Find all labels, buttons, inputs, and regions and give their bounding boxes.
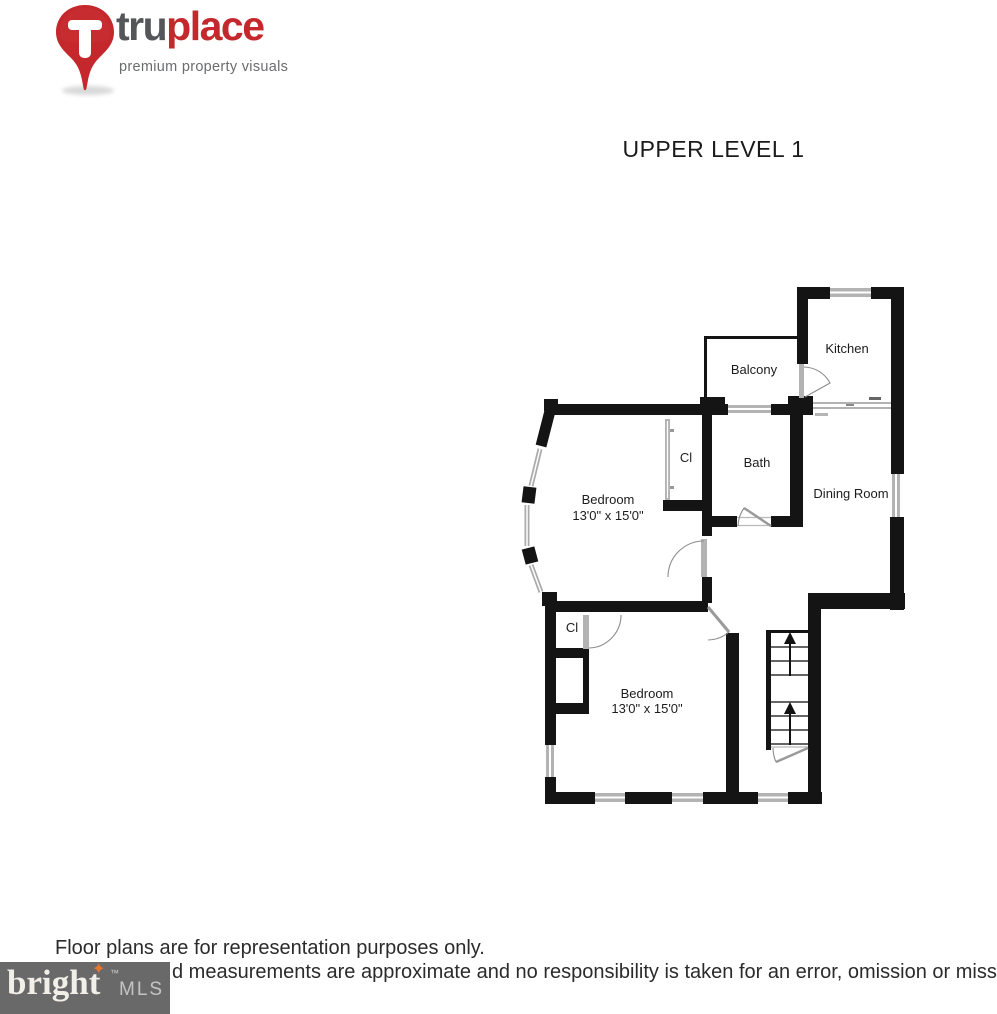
walls bbox=[542, 287, 905, 804]
room-label-kitchen: Kitchen bbox=[825, 341, 868, 356]
stairs bbox=[771, 630, 808, 745]
brightmls-wordmark: bright bbox=[7, 963, 100, 1003]
room-label-closet-lower: Cl bbox=[566, 620, 578, 635]
brightmls-star-icon: ✦ bbox=[92, 959, 105, 979]
room-label-bath: Bath bbox=[744, 455, 771, 470]
room-dims-bedroom-upper: 13'0" x 15'0" bbox=[572, 508, 644, 523]
brightmls-logo: bright ✦ ™ MLS bbox=[0, 962, 170, 1014]
stair-door-leaf bbox=[776, 748, 808, 762]
room-label-dining: Dining Room bbox=[813, 486, 888, 501]
kitchen-counter bbox=[813, 397, 891, 416]
bedroom-upper-door-leaf bbox=[701, 539, 707, 577]
floorplan-drawing: Kitchen Balcony Cl Bath Dining Room Bedr… bbox=[0, 0, 997, 1014]
page: truplace premium property visuals UPPER … bbox=[0, 0, 997, 1014]
kitchen-door-leaf bbox=[799, 364, 804, 398]
room-label-closet-upper: Cl bbox=[680, 450, 692, 465]
room-label-bedroom-upper: Bedroom bbox=[582, 492, 635, 507]
room-label-bedroom-lower: Bedroom bbox=[621, 686, 674, 701]
closet-lower-door-leaf bbox=[583, 615, 589, 649]
disclaimer-line2: d measurements are approximate and no re… bbox=[172, 961, 997, 984]
brightmls-suffix: MLS bbox=[119, 979, 164, 1001]
closet-upper-door bbox=[665, 419, 674, 500]
room-label-balcony: Balcony bbox=[731, 362, 778, 377]
windows bbox=[546, 288, 900, 802]
room-dims-bedroom-lower: 13'0" x 15'0" bbox=[611, 701, 683, 716]
bedroom-lower-door-leaf bbox=[708, 607, 729, 632]
bay-windows bbox=[527, 449, 541, 592]
brightmls-trademark: ™ bbox=[110, 968, 119, 978]
disclaimer-line1: Floor plans are for representation purpo… bbox=[55, 937, 485, 960]
